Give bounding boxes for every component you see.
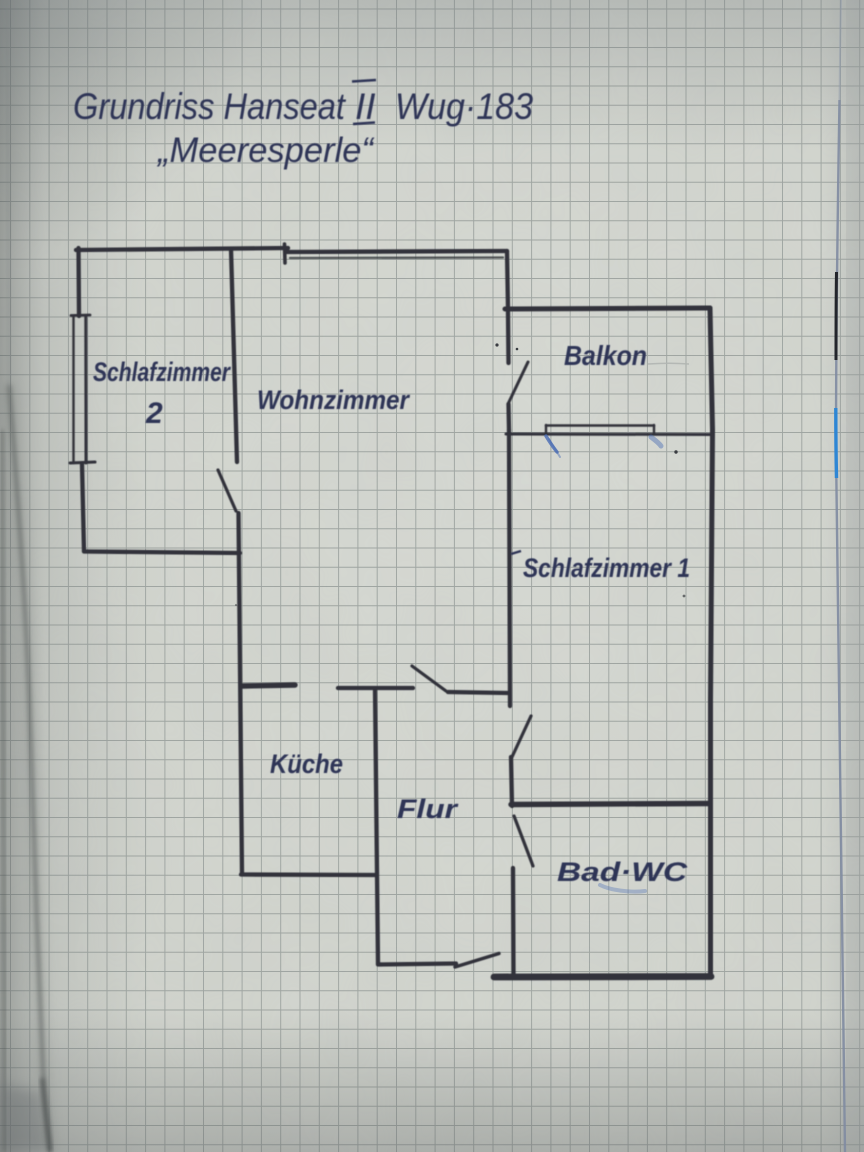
svg-text:Grundriss Hanseat: Grundriss Hanseat <box>73 86 347 127</box>
svg-text:Küche: Küche <box>270 749 343 779</box>
svg-text:„Meeresperle“: „Meeresperle“ <box>156 131 375 170</box>
svg-text:Bad·WC: Bad·WC <box>557 857 688 887</box>
svg-text:II: II <box>355 86 376 127</box>
svg-text:Wohnzimmer: Wohnzimmer <box>257 385 410 415</box>
svg-text:Schlafzimmer: Schlafzimmer <box>93 357 231 387</box>
svg-text:Flur: Flur <box>397 794 459 824</box>
svg-text:Wug·183: Wug·183 <box>395 86 533 127</box>
svg-text:Balkon: Balkon <box>564 340 647 371</box>
svg-text:2: 2 <box>145 397 163 430</box>
svg-text:Schlafzimmer 1: Schlafzimmer 1 <box>523 553 690 583</box>
